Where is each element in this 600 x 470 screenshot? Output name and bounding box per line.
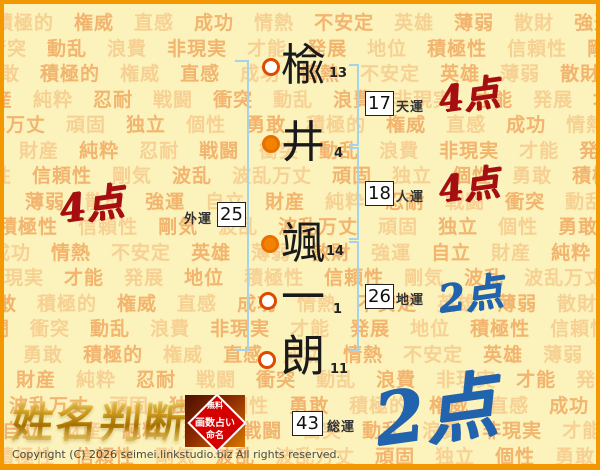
filled-circle-icon (262, 135, 280, 153)
jinun-score: 4点 (436, 164, 501, 208)
chiun-label: 地運 (396, 289, 424, 308)
tenun-score: 4点 (436, 74, 501, 118)
bracket-chiun (349, 241, 359, 352)
site-logo[interactable]: 姓名判断 (9, 389, 191, 450)
gaiun-label: 外運 (184, 208, 212, 227)
name-char: 楡 (279, 44, 327, 88)
gaiun-value-box: 25 (217, 202, 246, 227)
bracket-jinun (349, 147, 359, 240)
name-char: 颯 (279, 222, 327, 266)
open-circle-icon (258, 351, 276, 369)
tenun-label: 天運 (396, 96, 424, 115)
filled-circle-icon (261, 235, 279, 253)
open-circle-icon (259, 292, 277, 310)
name-char: 朗 (279, 335, 327, 379)
badge-line2: 画数占い (185, 414, 245, 429)
souun-label: 総運 (327, 416, 355, 435)
souun-value-box: 43 (292, 411, 323, 436)
stroke-count: 14 (326, 244, 344, 259)
name-char: 一 (279, 276, 327, 320)
chiun-score: 2点 (436, 272, 505, 319)
stroke-count: 11 (330, 362, 348, 377)
badge-line1: 無料 (185, 400, 245, 411)
chiun-value-box: 26 (365, 284, 394, 309)
stroke-count: 1 (333, 302, 342, 317)
name-char: 井 (279, 121, 327, 165)
jinun-value-box: 18 (365, 181, 394, 206)
bracket-tenun (349, 64, 359, 146)
jinun-label: 人運 (396, 186, 424, 205)
page: 積極的 権威 直感 成功 情熱 不安定 英雄 薄弱 散財 強運 自立 財産 純粋… (0, 0, 600, 470)
stroke-count: 4 (334, 146, 343, 161)
free-naming-badge[interactable]: 無料 画数占い 命名 (185, 395, 245, 447)
copyright-text: Copyright (C) 2026 seimei.linkstudio.biz… (12, 448, 340, 461)
gaiun-score: 4点 (57, 182, 126, 229)
stroke-count: 13 (329, 66, 347, 81)
badge-line3: 命名 (185, 428, 245, 441)
open-circle-icon (262, 58, 280, 76)
souun-score: 2点 (370, 368, 501, 456)
tenun-value-box: 17 (365, 91, 394, 116)
